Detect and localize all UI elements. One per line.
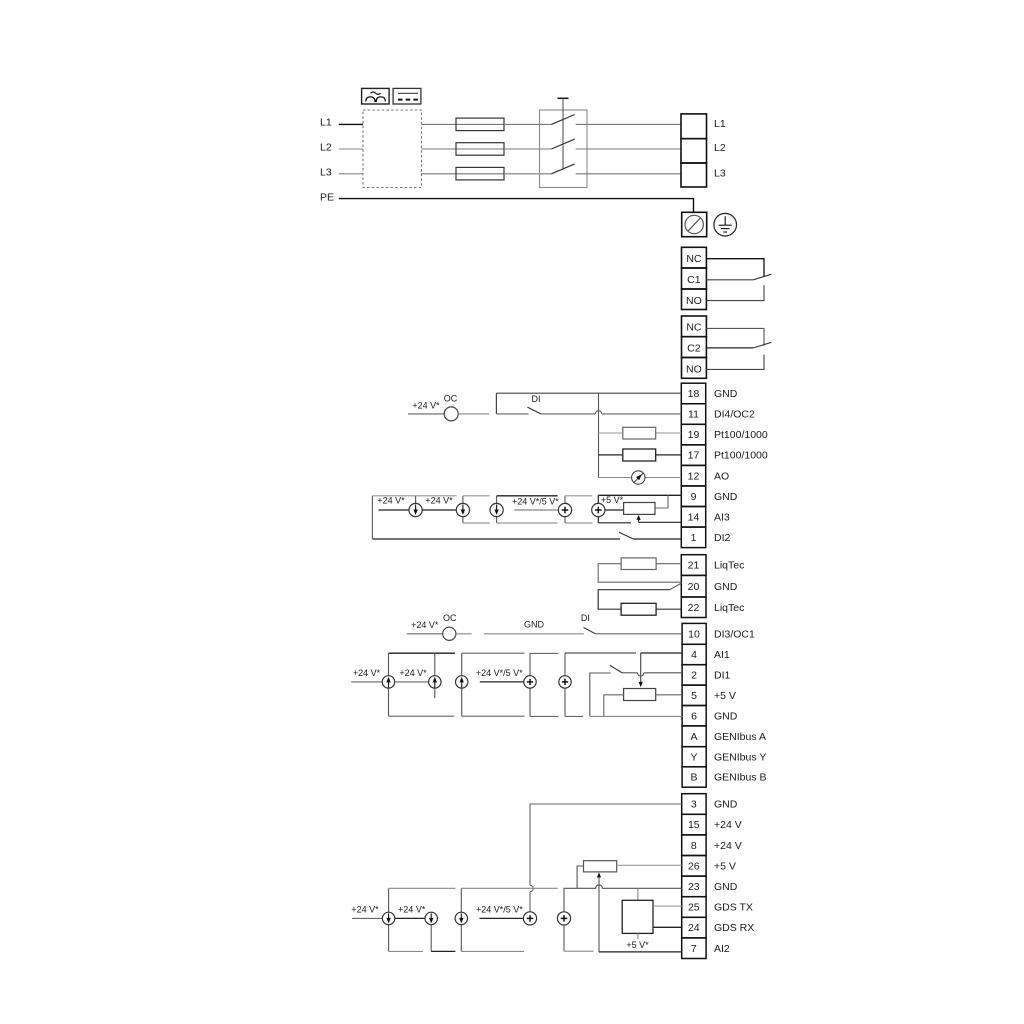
svg-text:14: 14: [688, 511, 700, 523]
svg-text:+24 V*: +24 V*: [351, 904, 379, 914]
svg-text:DI3/OC1: DI3/OC1: [714, 629, 755, 641]
svg-text:C1: C1: [687, 274, 701, 286]
svg-text:DI2: DI2: [714, 532, 731, 544]
svg-text:+24 V*: +24 V*: [398, 904, 426, 914]
svg-text:B: B: [690, 772, 697, 784]
svg-text:+5 V*: +5 V*: [626, 940, 649, 950]
svg-text:GND: GND: [714, 491, 738, 503]
svg-text:+24 V*: +24 V*: [353, 668, 381, 678]
svg-text:Pt100/1000: Pt100/1000: [714, 429, 768, 441]
svg-text:5: 5: [691, 690, 697, 702]
svg-text:+5 V: +5 V: [714, 860, 736, 872]
svg-text:+24 V*/5 V*: +24 V*/5 V*: [476, 668, 523, 678]
svg-text:15: 15: [688, 819, 700, 831]
svg-text:24: 24: [688, 922, 700, 934]
svg-text:GDS TX: GDS TX: [714, 902, 753, 914]
svg-text:10: 10: [688, 629, 700, 641]
svg-text:20: 20: [688, 581, 700, 593]
svg-text:26: 26: [688, 860, 700, 872]
svg-text:DI: DI: [581, 613, 590, 623]
svg-text:GND: GND: [714, 881, 738, 893]
svg-text:1: 1: [691, 532, 697, 544]
svg-text:+24 V: +24 V: [714, 840, 742, 852]
svg-text:+24 V*: +24 V*: [411, 620, 439, 630]
svg-text:GND: GND: [714, 388, 738, 400]
svg-text:NC: NC: [686, 322, 702, 334]
svg-text:12: 12: [688, 470, 700, 482]
svg-text:NO: NO: [686, 364, 702, 376]
svg-text:3: 3: [691, 799, 697, 811]
svg-text:LiqTec: LiqTec: [714, 602, 744, 614]
svg-text:6: 6: [691, 710, 697, 722]
svg-text:A: A: [690, 731, 697, 743]
svg-text:19: 19: [688, 429, 700, 441]
svg-text:11: 11: [688, 409, 699, 421]
svg-text:GND: GND: [714, 799, 738, 811]
svg-text:Pt100/1000: Pt100/1000: [714, 450, 768, 462]
svg-text:C2: C2: [687, 343, 701, 355]
svg-text:GENIbus B: GENIbus B: [714, 772, 767, 784]
svg-text:+24 V*: +24 V*: [377, 496, 405, 506]
svg-text:AI1: AI1: [714, 649, 730, 661]
svg-text:2: 2: [691, 670, 697, 682]
svg-text:Y: Y: [690, 751, 697, 763]
svg-text:+5 V: +5 V: [714, 690, 736, 702]
svg-text:+24 V*: +24 V*: [399, 668, 427, 678]
svg-text:GDS RX: GDS RX: [714, 922, 754, 934]
svg-text:25: 25: [688, 902, 700, 914]
svg-text:4: 4: [691, 649, 697, 661]
svg-text:AI3: AI3: [714, 511, 730, 523]
svg-text:DI: DI: [532, 394, 541, 404]
svg-text:L2: L2: [320, 142, 332, 154]
svg-text:+24 V*/5 V*: +24 V*/5 V*: [512, 497, 559, 507]
svg-text:LiqTec: LiqTec: [714, 560, 744, 572]
svg-text:L1: L1: [320, 117, 332, 129]
svg-text:L1: L1: [714, 118, 726, 130]
svg-text:17: 17: [688, 450, 700, 462]
svg-text:OC: OC: [444, 394, 458, 404]
svg-text:23: 23: [688, 881, 700, 893]
svg-text:GENIbus A: GENIbus A: [714, 731, 766, 743]
svg-text:9: 9: [691, 491, 697, 503]
svg-text:GND: GND: [714, 581, 738, 593]
svg-text:GENIbus Y: GENIbus Y: [714, 751, 766, 763]
svg-text:PE: PE: [320, 191, 334, 203]
svg-text:AI2: AI2: [714, 943, 730, 955]
svg-text:L2: L2: [714, 142, 726, 154]
svg-text:21: 21: [688, 560, 700, 572]
svg-text:OC: OC: [443, 613, 457, 623]
svg-text:18: 18: [688, 388, 700, 400]
svg-text:7: 7: [691, 943, 697, 955]
svg-text:+24 V*: +24 V*: [412, 400, 440, 410]
svg-text:NC: NC: [686, 253, 702, 265]
svg-text:L3: L3: [320, 166, 332, 178]
svg-text:+24 V*: +24 V*: [425, 496, 453, 506]
svg-text:L3: L3: [714, 167, 726, 179]
svg-text:22: 22: [688, 602, 700, 614]
svg-text:DI4/OC2: DI4/OC2: [714, 409, 755, 421]
svg-text:DI1: DI1: [714, 670, 731, 682]
svg-text:+24 V*/5 V*: +24 V*/5 V*: [476, 904, 523, 914]
svg-text:NO: NO: [686, 295, 702, 307]
svg-text:GND: GND: [524, 619, 545, 629]
svg-text:GND: GND: [714, 710, 738, 722]
svg-text:AO: AO: [714, 470, 729, 482]
svg-text:+5 V*: +5 V*: [601, 495, 624, 505]
svg-text:8: 8: [691, 840, 697, 852]
svg-text:+24 V: +24 V: [714, 819, 742, 831]
